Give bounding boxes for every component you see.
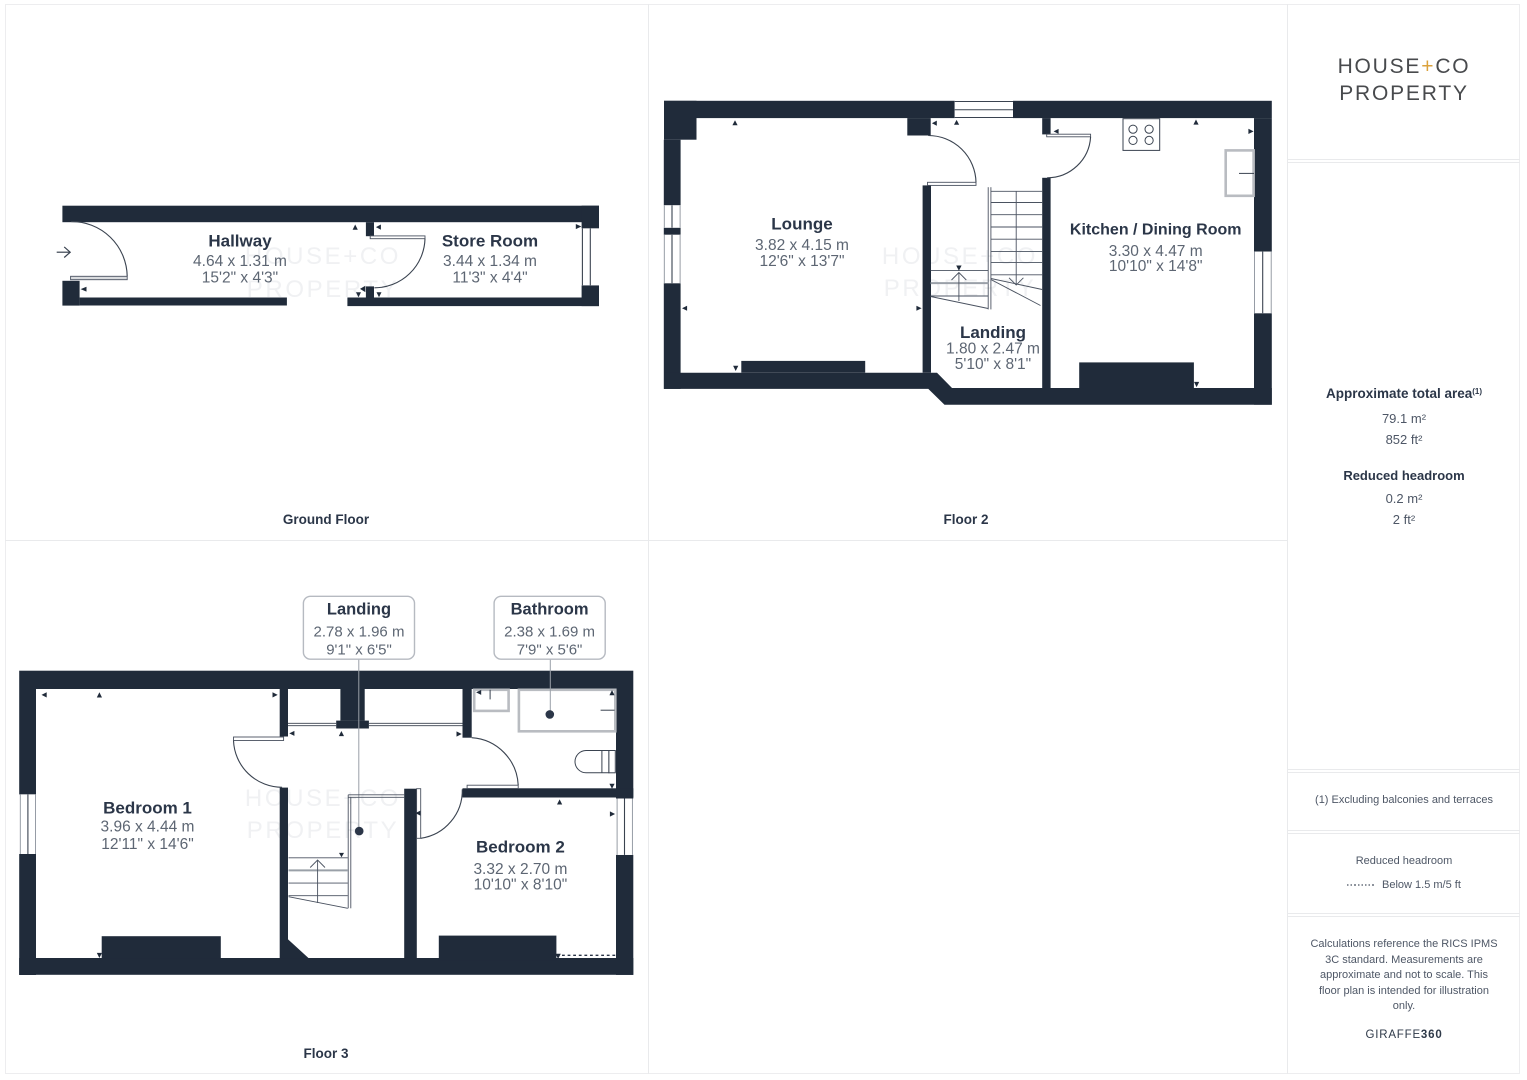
svg-text:Store Room: Store Room — [442, 232, 538, 251]
svg-text:15'2" x 4'3": 15'2" x 4'3" — [202, 270, 278, 287]
svg-text:1.80 x 2.47 m: 1.80 x 2.47 m — [946, 341, 1040, 358]
svg-text:Landing: Landing — [327, 600, 391, 618]
svg-text:9'1" x 6'5": 9'1" x 6'5" — [326, 642, 392, 659]
svg-text:Kitchen / Dining Room: Kitchen / Dining Room — [1070, 222, 1242, 239]
svg-text:Floor 2: Floor 2 — [943, 512, 988, 527]
svg-text:11'3" x 4'4": 11'3" x 4'4" — [452, 270, 527, 287]
svg-text:Bedroom 1: Bedroom 1 — [103, 799, 192, 818]
svg-text:5'10" x 8'1": 5'10" x 8'1" — [955, 356, 1031, 373]
svg-text:3.44 x 1.34 m: 3.44 x 1.34 m — [443, 253, 537, 270]
svg-text:Hallway: Hallway — [208, 232, 272, 251]
svg-text:2.38 x 1.69 m: 2.38 x 1.69 m — [504, 623, 595, 640]
svg-text:Bedroom 2: Bedroom 2 — [476, 838, 565, 857]
svg-text:3.82 x 4.15 m: 3.82 x 4.15 m — [755, 237, 849, 254]
svg-text:12'11" x 14'6": 12'11" x 14'6" — [101, 836, 193, 853]
svg-text:Bathroom: Bathroom — [511, 600, 589, 618]
svg-text:3.96 x 4.44 m: 3.96 x 4.44 m — [101, 818, 195, 835]
svg-text:12'6" x 13'7": 12'6" x 13'7" — [759, 253, 844, 270]
svg-text:2.78 x 1.96 m: 2.78 x 1.96 m — [314, 623, 405, 640]
svg-text:HOUSE+CO: HOUSE+CO — [245, 785, 401, 812]
svg-text:3.32 x 2.70 m: 3.32 x 2.70 m — [473, 861, 567, 878]
svg-text:Floor 3: Floor 3 — [303, 1046, 348, 1061]
svg-text:Ground Floor: Ground Floor — [283, 512, 370, 527]
svg-text:7'9" x 5'6": 7'9" x 5'6" — [517, 642, 583, 659]
svg-text:10'10" x 8'10": 10'10" x 8'10" — [474, 876, 568, 893]
svg-text:PROPERTY: PROPERTY — [884, 275, 1036, 302]
svg-text:10'10" x 14'8": 10'10" x 14'8" — [1109, 258, 1203, 275]
svg-text:PROPERTY: PROPERTY — [247, 817, 399, 844]
svg-text:Lounge: Lounge — [771, 215, 832, 234]
svg-text:Landing: Landing — [960, 323, 1026, 342]
svg-text:4.64 x 1.31 m: 4.64 x 1.31 m — [193, 253, 287, 270]
